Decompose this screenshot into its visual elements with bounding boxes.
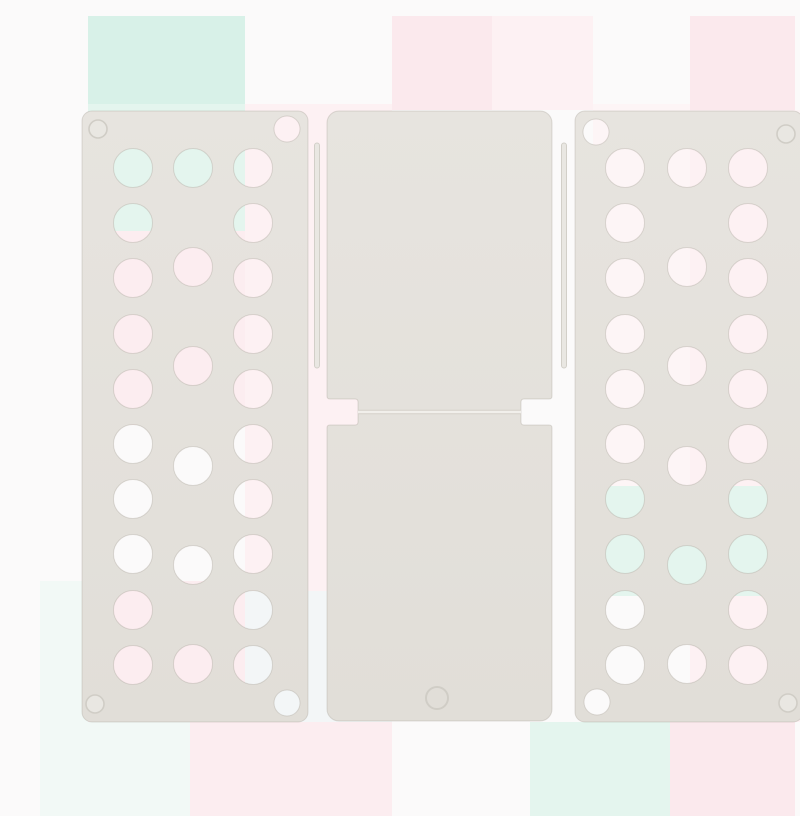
backdrop-square [40,581,88,722]
corner-ring [779,694,797,712]
center-panel [327,111,552,721]
corner-ring [89,120,107,138]
hinge-rod-right [562,143,567,368]
backdrop-square [530,722,670,816]
corner-ring [777,125,795,143]
backdrop-square [40,722,190,816]
backdrop-square [88,16,245,104]
corner-ring [86,695,104,713]
backdrop-square [670,722,795,816]
product-photo-figure [40,16,800,816]
right-wing-panel [575,111,800,722]
hinge-rod-left [315,143,320,368]
backdrop-square [690,16,795,110]
backdrop-square [190,722,392,816]
folding-board [82,111,800,722]
left-wing-panel [82,111,308,722]
backdrop-square [492,16,593,110]
folding-board-photo [40,16,800,816]
backdrop-square [392,16,492,110]
